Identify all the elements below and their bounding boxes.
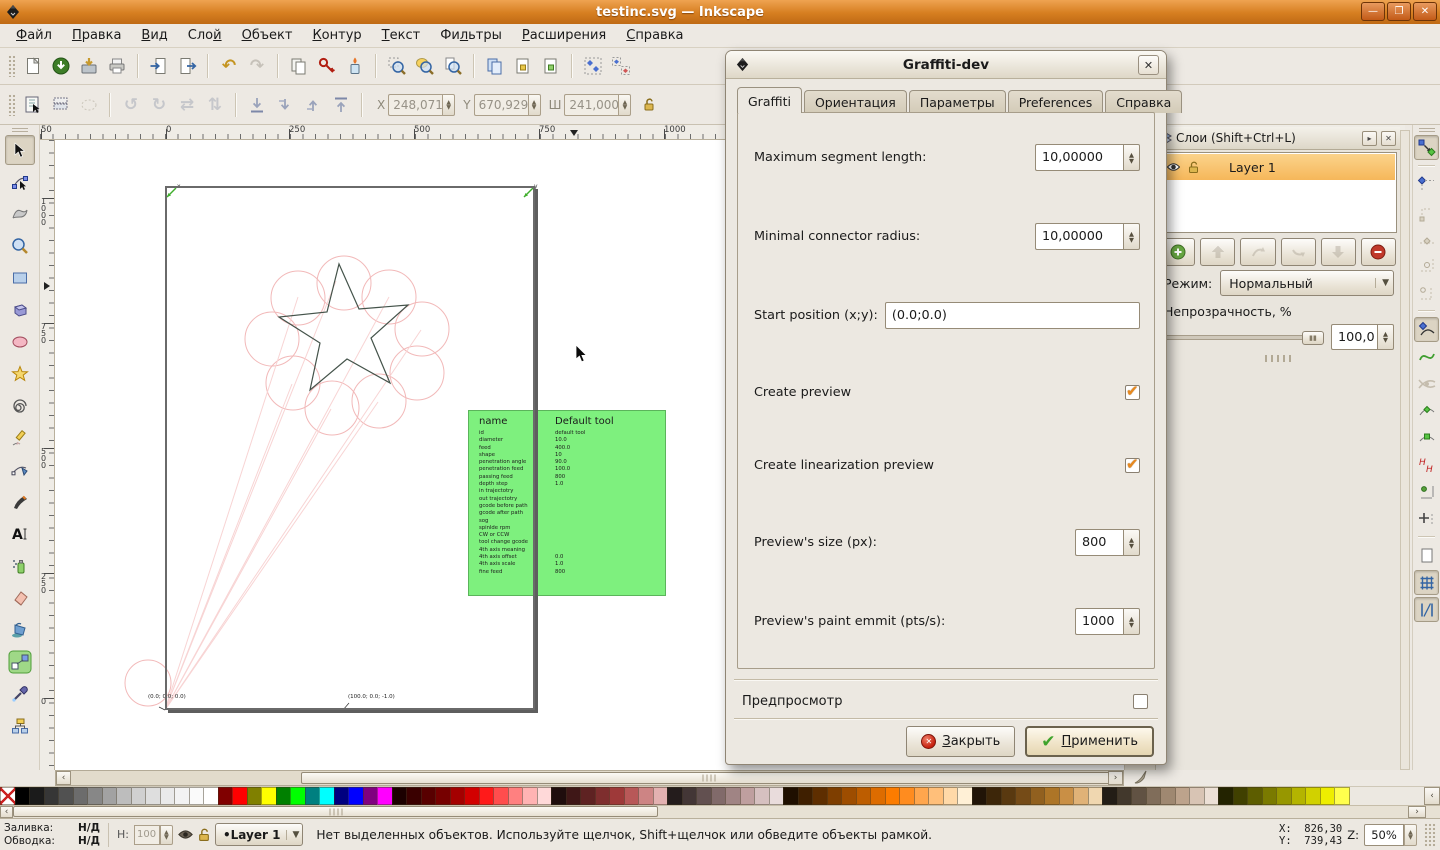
ungroup-button[interactable] — [607, 52, 635, 80]
palette-swatch[interactable] — [1030, 787, 1046, 805]
ruler-label: 500 — [414, 125, 430, 135]
palette-swatch[interactable] — [725, 787, 741, 805]
zoom-label: Z: — [1347, 828, 1359, 842]
palette-swatch[interactable] — [914, 787, 930, 805]
chevron-down-icon: ▼ — [1375, 278, 1389, 288]
inkscape-logo-icon — [735, 57, 750, 72]
x-spinner[interactable]: ▲▼ — [442, 94, 455, 116]
palette-swatch[interactable] — [740, 787, 756, 805]
layer-row[interactable]: Layer 1 — [1161, 154, 1395, 180]
palette-swatch[interactable] — [160, 787, 176, 805]
svg-text:H: H — [1419, 458, 1426, 468]
palette-swatch[interactable] — [754, 787, 770, 805]
tool-eraser[interactable] — [5, 583, 35, 613]
max-segment-label: Maximum segment length: — [754, 150, 926, 165]
palette-swatch[interactable] — [1117, 787, 1133, 805]
horizontal-scrollbar[interactable]: ‹ › — [55, 770, 1124, 786]
palette-swatch[interactable] — [1262, 787, 1278, 805]
tool-text[interactable]: A — [5, 519, 35, 549]
palette-swatch[interactable] — [116, 787, 132, 805]
palette-swatch[interactable] — [1204, 787, 1220, 805]
raise-to-top-button[interactable] — [327, 91, 355, 119]
zoom-spinner[interactable]: ▲▼ — [1404, 824, 1417, 846]
corner-quill-icon — [1126, 768, 1155, 786]
lock-ratio-icon[interactable] — [635, 91, 663, 119]
tool-options-toolbar: ↺ ↻ ⇄ ⇅ X 248,071▲▼ Y 670,929▲▼ Ш 241,00… — [0, 85, 1440, 125]
palette-swatch[interactable] — [566, 787, 582, 805]
palette-swatch[interactable] — [0, 787, 16, 805]
fill-label: Заливка: — [4, 822, 54, 835]
max-segment-spinner[interactable]: ▲▼ — [1123, 144, 1140, 171]
snap-bbox-icon[interactable] — [1414, 172, 1439, 197]
save-button[interactable] — [75, 52, 103, 80]
palette-swatch[interactable] — [1102, 787, 1118, 805]
menubar: Файл Правка Вид Слой Объект Контур Текст… — [0, 24, 1440, 48]
palette-swatch[interactable] — [247, 787, 263, 805]
layer-list[interactable]: Layer 1 — [1159, 152, 1397, 233]
palette-swatch[interactable] — [290, 787, 306, 805]
palette-swatch[interactable] — [827, 787, 843, 805]
apply-button[interactable]: ✔ Применить — [1025, 726, 1154, 757]
menu-item[interactable]: Справка — [616, 25, 693, 46]
palette-swatch[interactable] — [1059, 787, 1075, 805]
deselect-button[interactable] — [75, 91, 103, 119]
palette-scroll-left-icon[interactable]: ‹ — [1424, 787, 1440, 805]
snap-bbox-midpoint-icon[interactable] — [1414, 253, 1439, 278]
menu-item[interactable]: Вид — [131, 25, 177, 46]
preview-paint-emmit-input[interactable]: 1000 — [1075, 608, 1123, 635]
snap-bbox-center-icon[interactable] — [1414, 280, 1439, 305]
y-coordinate-input[interactable]: 670,929 — [474, 94, 528, 116]
palette-swatch[interactable] — [870, 787, 886, 805]
menu-item[interactable]: Слой — [178, 25, 232, 46]
palette-swatch[interactable] — [943, 787, 959, 805]
palette-swatch[interactable] — [29, 787, 45, 805]
palette-swatch[interactable] — [609, 787, 625, 805]
palette-swatch[interactable] — [522, 787, 538, 805]
layer-name: Layer 1 — [1229, 160, 1276, 175]
status-message: Нет выделенных объектов. Используйте щел… — [308, 828, 1274, 842]
y-coordinate-label: Y — [463, 98, 470, 112]
table-value-header: Default tool — [555, 416, 614, 427]
palette-scrollbar-thumb[interactable] — [13, 806, 658, 817]
snap-grid-icon[interactable] — [1414, 570, 1439, 595]
raise-layer-button[interactable] — [1240, 238, 1275, 266]
tool-gradient[interactable] — [5, 647, 35, 677]
blend-mode-select[interactable]: Нормальный ▼ — [1220, 270, 1394, 296]
palette-swatch[interactable] — [1146, 787, 1162, 805]
palette-swatch[interactable] — [1305, 787, 1321, 805]
snap-smooth-node-icon[interactable] — [1414, 425, 1439, 450]
dialog-title: Graffiti-dev — [903, 57, 989, 73]
tool-dropper[interactable] — [5, 679, 35, 709]
palette-swatch[interactable] — [450, 787, 466, 805]
palette-swatch[interactable] — [551, 787, 567, 805]
opacity-slider-thumb[interactable]: ▮▮ — [1302, 331, 1324, 345]
palette-swatch[interactable] — [1291, 787, 1307, 805]
palette-swatch[interactable] — [885, 787, 901, 805]
statusbar: Заливка:Н/Д Обводка:Н/Д Н: 100▲▼ •Layer … — [0, 818, 1440, 850]
live-preview-checkbox[interactable] — [1133, 694, 1148, 709]
minimize-button[interactable]: — — [1361, 2, 1385, 21]
tool-zoom[interactable] — [5, 231, 35, 261]
vertical-ruler[interactable]: 1000 750 500 250 0 — [40, 140, 55, 770]
layers-panel-titlebar[interactable]: Слои (Shift+Ctrl+L) ▸ ✕ — [1156, 127, 1400, 150]
lower-layer-button[interactable] — [1281, 238, 1316, 266]
palette-swatch[interactable] — [15, 787, 31, 805]
rotate-cw-button[interactable]: ↻ — [145, 91, 173, 119]
ruler-pointer-marker — [44, 282, 54, 290]
palette-swatch[interactable] — [305, 787, 321, 805]
paste-style-button[interactable] — [341, 52, 369, 80]
palette-swatch[interactable] — [44, 787, 60, 805]
paste-button[interactable] — [313, 52, 341, 80]
lower-button[interactable] — [271, 91, 299, 119]
object-opacity-spinner[interactable]: ▲▼ — [160, 825, 173, 845]
snap-page-border-icon[interactable] — [1414, 543, 1439, 568]
dialog-tab[interactable]: Справка — [1105, 90, 1182, 113]
delete-layer-button[interactable] — [1361, 238, 1396, 266]
ruler-label: 250 — [41, 573, 50, 594]
snap-toolbar: HH — [1412, 125, 1440, 770]
palette-swatch[interactable] — [87, 787, 103, 805]
palette-swatch[interactable] — [131, 787, 147, 805]
fill-value[interactable]: Н/Д — [60, 822, 100, 835]
palette-swatch[interactable] — [841, 787, 857, 805]
palette-swatch[interactable] — [1233, 787, 1249, 805]
preview-paint-emmit-spinner[interactable]: ▲▼ — [1123, 608, 1140, 635]
palette-swatch[interactable] — [972, 787, 988, 805]
palette-swatch[interactable] — [1175, 787, 1191, 805]
dialog-close-button[interactable]: ✕ — [1138, 55, 1159, 75]
create-linearization-preview-checkbox[interactable] — [1125, 458, 1140, 473]
palette-swatch[interactable] — [624, 787, 640, 805]
palette-swatch[interactable] — [899, 787, 915, 805]
toolbar-grip[interactable] — [8, 55, 15, 77]
layer-lock-icon[interactable] — [198, 828, 210, 841]
close-circle-icon: ✕ — [921, 734, 936, 749]
tool-pencil[interactable] — [5, 423, 35, 453]
layers-panel: Слои (Shift+Ctrl+L) ▸ ✕ Layer 1 Режим: Н… — [1155, 127, 1400, 770]
palette-swatch[interactable] — [957, 787, 973, 805]
min-radius-label: Minimal connector radius: — [754, 229, 920, 244]
tool-node-editor[interactable] — [5, 167, 35, 197]
dialog-tabs: Graffiti Ориентация Параметры Preference… — [737, 87, 1155, 113]
palette-swatch[interactable] — [58, 787, 74, 805]
tool-paint-bucket[interactable] — [5, 615, 35, 645]
snap-bbox-edge-icon[interactable] — [1414, 226, 1439, 251]
palette-swatch[interactable] — [145, 787, 161, 805]
create-preview-label: Create preview — [754, 385, 851, 400]
palette-swatch[interactable] — [479, 787, 495, 805]
palette-swatch[interactable] — [421, 787, 437, 805]
palette-swatch[interactable] — [856, 787, 872, 805]
snap-intersection-icon[interactable] — [1414, 371, 1439, 396]
ruler-label: 1000 — [664, 125, 686, 135]
palette-swatch[interactable] — [812, 787, 828, 805]
palette-swatch[interactable] — [406, 787, 422, 805]
palette-swatch[interactable] — [435, 787, 451, 805]
panel-close-icon[interactable]: ✕ — [1381, 131, 1396, 146]
dialog-tab[interactable]: Preferences — [1008, 90, 1104, 113]
snap-nodes-icon[interactable] — [1414, 317, 1439, 342]
snap-enable-icon[interactable] — [1414, 135, 1439, 160]
zoom-drawing-button[interactable] — [411, 52, 439, 80]
palette-swatch[interactable] — [1015, 787, 1031, 805]
blend-mode-value: Нормальный — [1229, 276, 1313, 291]
toolbox: A — [0, 125, 40, 770]
open-button[interactable] — [47, 52, 75, 80]
palette-swatch[interactable] — [377, 787, 393, 805]
ruler-label: 500 — [41, 448, 50, 469]
palette-swatch[interactable] — [1088, 787, 1104, 805]
menu-item[interactable]: Файл — [6, 25, 62, 46]
palette-swatch[interactable] — [1073, 787, 1089, 805]
create-linearization-preview-label: Create linearization preview — [754, 458, 934, 473]
palette-swatch[interactable] — [928, 787, 944, 805]
palette-swatch[interactable] — [1160, 787, 1176, 805]
palette-swatch[interactable] — [783, 787, 799, 805]
opacity-spinner[interactable]: ▲▼ — [1377, 324, 1394, 350]
palette-swatch[interactable] — [580, 787, 596, 805]
min-radius-spinner[interactable]: ▲▼ — [1123, 223, 1140, 250]
blend-mode-label: Режим: — [1164, 276, 1212, 291]
checkmark-icon: ✔ — [1041, 736, 1055, 748]
palette-swatch[interactable] — [986, 787, 1002, 805]
tool-star[interactable] — [5, 359, 35, 389]
preview-size-input[interactable]: 800 — [1075, 529, 1123, 556]
ruler-label: 750 — [539, 125, 555, 135]
snap-cusp-node-icon[interactable] — [1414, 398, 1439, 423]
x-coordinate-input[interactable]: 248,071 — [388, 94, 442, 116]
toolbar-grip[interactable] — [1419, 128, 1435, 132]
commands-toolbar: ↶ ↷ — [0, 48, 1440, 85]
layer-lock-icon[interactable] — [1188, 161, 1199, 173]
palette-swatch[interactable] — [276, 787, 292, 805]
palette-swatch[interactable] — [334, 787, 350, 805]
live-preview-label: Предпросмотр — [742, 694, 842, 709]
menu-item[interactable]: Правка — [62, 25, 131, 46]
palette-swatch[interactable] — [392, 787, 408, 805]
lower-layer-bottom-button[interactable] — [1321, 238, 1356, 266]
scroll-right-button[interactable]: › — [1108, 771, 1123, 785]
palette-swatch[interactable] — [464, 787, 480, 805]
ruler-pointer-marker — [570, 130, 578, 140]
snap-text-icon[interactable]: HH — [1414, 452, 1439, 477]
palette-swatch[interactable] — [508, 787, 524, 805]
snap-bbox-corner-icon[interactable] — [1414, 199, 1439, 224]
select-all-button[interactable] — [19, 91, 47, 119]
window-titlebar[interactable]: testinc.svg — Inkscape — ❐ ✕ — [0, 0, 1440, 24]
opacity-input[interactable]: 100,0 — [1331, 324, 1377, 350]
tool-selector[interactable] — [5, 135, 35, 165]
toolbar-grip[interactable] — [8, 94, 15, 116]
zoom-input[interactable]: 50% — [1364, 824, 1404, 846]
import-button[interactable] — [145, 52, 173, 80]
maximize-button[interactable]: ❐ — [1387, 2, 1411, 21]
ruler-label: 50 — [41, 125, 52, 135]
preview-size-label: Preview's size (px): — [754, 535, 877, 550]
tool-bezier-pen[interactable] — [5, 455, 35, 485]
palette-swatch[interactable] — [261, 787, 277, 805]
palette-swatch[interactable] — [653, 787, 669, 805]
preview-paint-emmit-label: Preview's paint emmit (pts/s): — [754, 614, 945, 629]
scroll-left-button[interactable]: ‹ — [56, 771, 71, 785]
flip-vertical-button[interactable]: ⇅ — [201, 91, 229, 119]
group-button[interactable] — [579, 52, 607, 80]
palette-swatch[interactable] — [667, 787, 683, 805]
print-button[interactable] — [103, 52, 131, 80]
width-input[interactable]: 241,000 — [564, 94, 618, 116]
color-palette — [0, 786, 1440, 805]
tool-calligraphy[interactable] — [5, 487, 35, 517]
tool-3d-box[interactable] — [5, 295, 35, 325]
zoom-page-button[interactable] — [439, 52, 467, 80]
palette-swatch[interactable] — [203, 787, 219, 805]
clone-button[interactable] — [509, 52, 537, 80]
graffiti-dialog: Graffiti-dev ✕ Graffiti Ориентация Парам… — [725, 50, 1167, 765]
dock-scrollbar[interactable] — [1400, 130, 1410, 770]
max-segment-input[interactable]: 10,00000 — [1035, 144, 1123, 171]
toolbar-grip[interactable] — [12, 128, 28, 132]
opacity-slider[interactable]: ▮▮ — [1164, 335, 1323, 340]
raise-layer-top-button[interactable] — [1200, 238, 1235, 266]
scrollbar-thumb[interactable] — [301, 772, 1116, 784]
palette-swatch[interactable] — [1218, 787, 1234, 805]
palette-swatch[interactable] — [711, 787, 727, 805]
y-spinner[interactable]: ▲▼ — [528, 94, 541, 116]
menu-item[interactable]: Контур — [302, 25, 371, 46]
palette-scroll-right-button[interactable]: › — [1408, 806, 1426, 818]
tool-rectangle[interactable] — [5, 263, 35, 293]
start-position-input[interactable]: (0.0;0.0) — [885, 302, 1140, 329]
palette-swatch[interactable] — [595, 787, 611, 805]
palette-swatch[interactable] — [1001, 787, 1017, 805]
snap-guides-icon[interactable] — [1414, 597, 1439, 622]
object-opacity-input[interactable]: 100 — [134, 825, 160, 845]
palette-swatch[interactable] — [232, 787, 248, 805]
snap-rotation-center-icon[interactable] — [1414, 479, 1439, 504]
palette-swatch[interactable] — [769, 787, 785, 805]
min-radius-input[interactable]: 10,00000 — [1035, 223, 1123, 250]
palette-swatch[interactable] — [73, 787, 89, 805]
layer-visibility-eye-icon[interactable] — [178, 829, 193, 840]
tool-spray[interactable] — [5, 551, 35, 581]
palette-swatch[interactable] — [1320, 787, 1336, 805]
rotate-ccw-button[interactable]: ↺ — [117, 91, 145, 119]
flip-horizontal-button[interactable]: ⇄ — [173, 91, 201, 119]
ruler-label: 250 — [289, 125, 305, 135]
snap-path-icon[interactable] — [1414, 344, 1439, 369]
palette-swatch[interactable] — [102, 787, 118, 805]
svg-text:H: H — [1426, 465, 1433, 475]
palette-swatch[interactable] — [363, 787, 379, 805]
current-layer-select[interactable]: •Layer 1 ▼ — [215, 823, 303, 846]
palette-swatch[interactable] — [1334, 787, 1350, 805]
export-button[interactable] — [173, 52, 201, 80]
menu-item[interactable]: Расширения — [512, 25, 616, 46]
palette-swatch[interactable] — [682, 787, 698, 805]
close-dialog-button[interactable]: ✕ Закрыть — [906, 726, 1015, 757]
ruler-label: 750 — [41, 323, 50, 344]
opacity-label: Непрозрачность, % — [1164, 304, 1292, 319]
copy-button[interactable] — [285, 52, 313, 80]
duplicate-button[interactable] — [481, 52, 509, 80]
palette-swatch[interactable] — [1189, 787, 1205, 805]
redo-button[interactable]: ↷ — [243, 52, 271, 80]
dialog-titlebar[interactable]: Graffiti-dev ✕ — [726, 51, 1166, 79]
width-spinner[interactable]: ▲▼ — [618, 94, 631, 116]
tool-ellipse[interactable] — [5, 327, 35, 357]
page-border — [165, 186, 535, 710]
palette-swatch[interactable] — [798, 787, 814, 805]
palette-swatch[interactable] — [1044, 787, 1060, 805]
tool-spiral[interactable] — [5, 391, 35, 421]
unlink-clone-button[interactable] — [537, 52, 565, 80]
menu-item[interactable]: Текст — [372, 25, 431, 46]
palette-swatch[interactable] — [189, 787, 205, 805]
tool-tweak[interactable] — [5, 199, 35, 229]
select-all-layers-button[interactable] — [47, 91, 75, 119]
dialog-tab[interactable]: Graffiti — [737, 87, 802, 113]
palette-swatch[interactable] — [638, 787, 654, 805]
palette-swatch[interactable] — [537, 787, 553, 805]
palette-swatch[interactable] — [174, 787, 190, 805]
panel-detach-icon[interactable]: ▸ — [1362, 131, 1377, 146]
create-preview-checkbox[interactable] — [1125, 385, 1140, 400]
new-document-button[interactable] — [19, 52, 47, 80]
ruler-label: 1000 — [41, 198, 50, 226]
palette-swatch[interactable] — [218, 787, 234, 805]
chevron-down-icon: ▼ — [286, 830, 299, 840]
menu-item[interactable]: Фильтры — [430, 25, 512, 46]
palette-swatch[interactable] — [696, 787, 712, 805]
dialog-tab[interactable]: Ориентация — [804, 90, 907, 113]
mouse-cursor — [575, 344, 589, 364]
stroke-value[interactable]: Н/Д — [60, 835, 100, 848]
palette-swatch[interactable] — [1276, 787, 1292, 805]
zoom-selection-button[interactable] — [383, 52, 411, 80]
current-layer-value: Layer 1 — [231, 828, 281, 842]
palette-swatch[interactable] — [319, 787, 335, 805]
layer-visibility-eye-icon[interactable] — [1167, 162, 1180, 172]
raise-button[interactable] — [299, 91, 327, 119]
preview-size-spinner[interactable]: ▲▼ — [1123, 529, 1140, 556]
pointer-coordinates: X: 826,30 Y: 739,43 — [1279, 823, 1342, 847]
tool-connector[interactable] — [5, 711, 35, 741]
lower-to-bottom-button[interactable] — [243, 91, 271, 119]
undo-button[interactable]: ↶ — [215, 52, 243, 80]
dialog-tab[interactable]: Параметры — [909, 90, 1006, 113]
start-position-label: Start position (x;y): — [754, 308, 878, 323]
close-button[interactable]: ✕ — [1413, 2, 1437, 21]
window-title: testinc.svg — Inkscape — [0, 5, 1360, 20]
layers-panel-title: Слои (Shift+Ctrl+L) — [1176, 131, 1296, 145]
palette-swatch[interactable] — [1247, 787, 1263, 805]
palette-swatch[interactable] — [1131, 787, 1147, 805]
palette-swatch[interactable] — [348, 787, 364, 805]
stroke-label: Обводка: — [4, 835, 54, 848]
palette-swatch[interactable] — [493, 787, 509, 805]
svg-text:A: A — [12, 527, 23, 543]
palette-scroll-left-button[interactable]: ‹ — [0, 806, 13, 818]
object-opacity-label: Н: — [117, 828, 129, 841]
window-resize-grip[interactable] — [1424, 823, 1436, 847]
snap-others-icon[interactable] — [1414, 506, 1439, 531]
dock-resize-grip[interactable] — [1265, 355, 1291, 362]
ruler-label: 0 — [41, 698, 50, 705]
menu-item[interactable]: Объект — [232, 25, 303, 46]
